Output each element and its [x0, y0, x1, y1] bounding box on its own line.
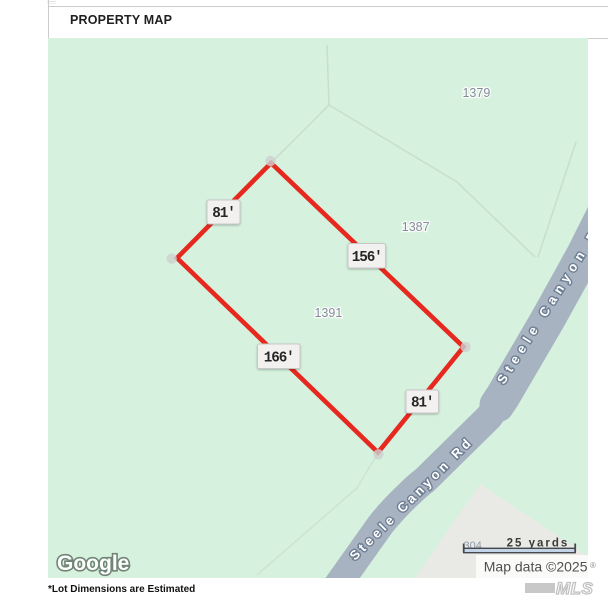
svg-text:1387: 1387 — [402, 220, 430, 234]
svg-text:1379: 1379 — [462, 86, 490, 100]
svg-text:Google: Google — [57, 552, 129, 575]
svg-text:156': 156' — [352, 250, 382, 266]
svg-text:81': 81' — [212, 206, 234, 222]
svg-text:Map data ©2025: Map data ©2025 — [484, 559, 588, 575]
svg-text:166': 166' — [264, 351, 294, 367]
svg-text:81': 81' — [411, 396, 433, 412]
svg-text:1391: 1391 — [314, 306, 342, 320]
